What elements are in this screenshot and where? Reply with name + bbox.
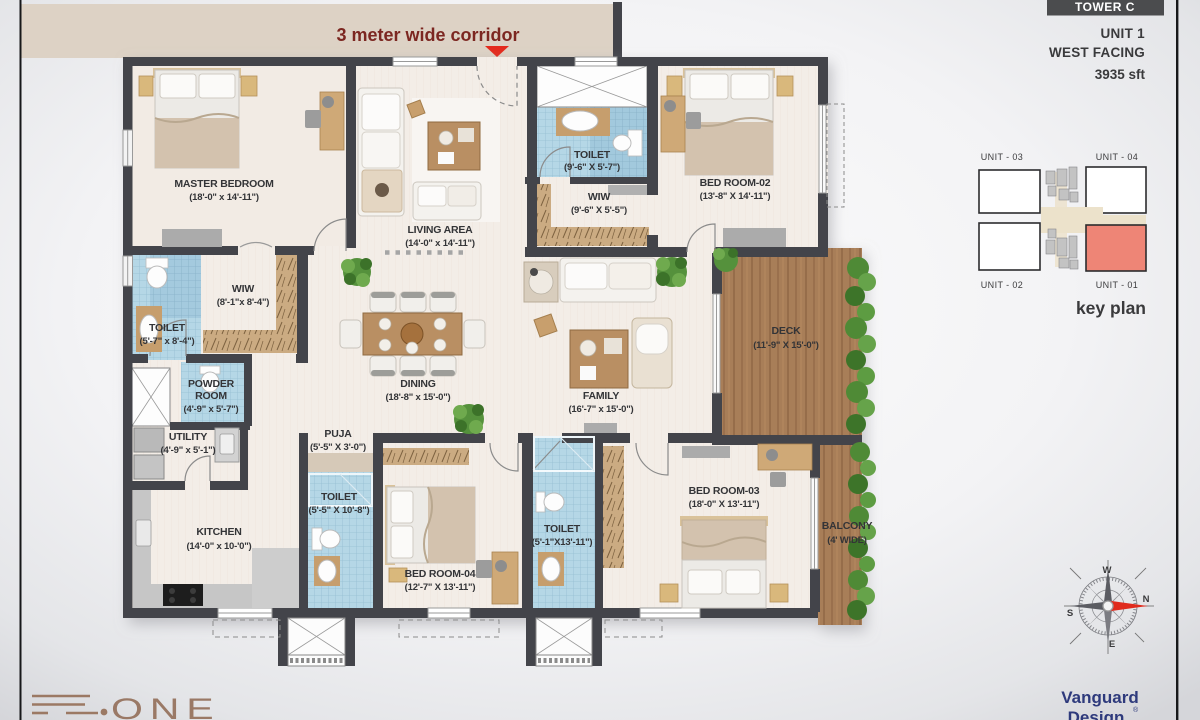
svg-text:(4'-9" x 5'-7"): (4'-9" x 5'-7") <box>184 404 239 415</box>
svg-text:(14'-0" x 14'-11"): (14'-0" x 14'-11") <box>405 238 475 249</box>
svg-text:3 meter wide corridor: 3 meter wide corridor <box>336 25 519 45</box>
svg-text:(18'-0" X 13'-11"): (18'-0" X 13'-11") <box>689 499 760 510</box>
svg-text:DINING: DINING <box>400 378 436 390</box>
svg-text:TOILET: TOILET <box>149 322 186 334</box>
svg-text:PUJA: PUJA <box>324 428 352 440</box>
svg-text:UNIT - 02: UNIT - 02 <box>981 280 1023 290</box>
svg-text:ROOM: ROOM <box>195 390 227 402</box>
svg-text:WEST FACING: WEST FACING <box>1049 45 1145 60</box>
svg-text:(9'-6" X 5'-5"): (9'-6" X 5'-5") <box>571 205 627 216</box>
svg-text:Design: Design <box>1068 708 1125 720</box>
svg-text:TOILET: TOILET <box>574 149 611 161</box>
svg-text:ONE: ONE <box>111 691 221 720</box>
svg-text:(13'-8" X 14'-11"): (13'-8" X 14'-11") <box>700 191 771 202</box>
svg-text:(8'-1"x 8'-4"): (8'-1"x 8'-4") <box>217 297 269 308</box>
svg-text:W: W <box>1103 565 1112 576</box>
svg-text:UNIT 1: UNIT 1 <box>1100 26 1145 41</box>
svg-text:UNIT - 01: UNIT - 01 <box>1096 280 1138 290</box>
svg-text:(18'-0" x 14'-11"): (18'-0" x 14'-11") <box>189 192 259 203</box>
svg-text:TOILET: TOILET <box>321 491 358 503</box>
svg-text:(18'-8" x 15'-0"): (18'-8" x 15'-0") <box>385 392 450 403</box>
svg-text:KITCHEN: KITCHEN <box>196 526 241 538</box>
svg-text:(16'-7" x 15'-0"): (16'-7" x 15'-0") <box>568 404 633 415</box>
svg-text:LIVING AREA: LIVING AREA <box>407 224 473 236</box>
svg-text:TOWER C: TOWER C <box>1075 0 1135 14</box>
svg-text:(9'-6" X 5'-7"): (9'-6" X 5'-7") <box>564 162 620 173</box>
svg-text:(14'-0" x 10-'0"): (14'-0" x 10-'0") <box>186 541 251 552</box>
svg-text:TOILET: TOILET <box>544 523 581 535</box>
svg-text:key plan: key plan <box>1076 298 1146 318</box>
svg-text:FAMILY: FAMILY <box>583 390 620 402</box>
svg-text:UNIT - 04: UNIT - 04 <box>1096 152 1138 162</box>
svg-text:BALCONY: BALCONY <box>822 520 873 532</box>
svg-text:(11'-9" X 15'-0"): (11'-9" X 15'-0") <box>753 340 819 351</box>
svg-text:BED ROOM-04: BED ROOM-04 <box>405 568 476 580</box>
svg-text:(5'-5" X 3'-0"): (5'-5" X 3'-0") <box>310 442 366 453</box>
svg-text:(5'-1"X13'-11"): (5'-1"X13'-11") <box>532 537 593 548</box>
svg-text:POWDER: POWDER <box>188 378 235 390</box>
svg-text:MASTER BEDROOM: MASTER BEDROOM <box>174 178 274 190</box>
svg-text:(5'-7" x 8'-4"): (5'-7" x 8'-4") <box>140 336 195 347</box>
svg-text:S: S <box>1067 608 1073 619</box>
svg-text:DECK: DECK <box>772 325 802 337</box>
svg-text:3935 sft: 3935 sft <box>1095 67 1146 82</box>
svg-text:N: N <box>1143 594 1150 605</box>
svg-text:(4'-9" x 5'-1"): (4'-9" x 5'-1") <box>161 445 216 456</box>
svg-text:®: ® <box>1133 706 1139 714</box>
svg-text:(4' WIDE): (4' WIDE) <box>827 535 867 546</box>
svg-text:BED ROOM-02: BED ROOM-02 <box>700 177 771 189</box>
svg-text:Vanguard: Vanguard <box>1061 688 1138 707</box>
svg-text:BED ROOM-03: BED ROOM-03 <box>689 485 760 497</box>
svg-text:(12'-7" X 13'-11"): (12'-7" X 13'-11") <box>405 582 476 593</box>
svg-text:WIW: WIW <box>232 283 254 295</box>
svg-text:UTILITY: UTILITY <box>169 431 207 443</box>
svg-text:UNIT - 03: UNIT - 03 <box>981 152 1023 162</box>
svg-text:WIW: WIW <box>588 191 610 203</box>
svg-text:E: E <box>1109 639 1115 650</box>
svg-text:(5'-5" X 10'-8"): (5'-5" X 10'-8") <box>308 505 369 516</box>
